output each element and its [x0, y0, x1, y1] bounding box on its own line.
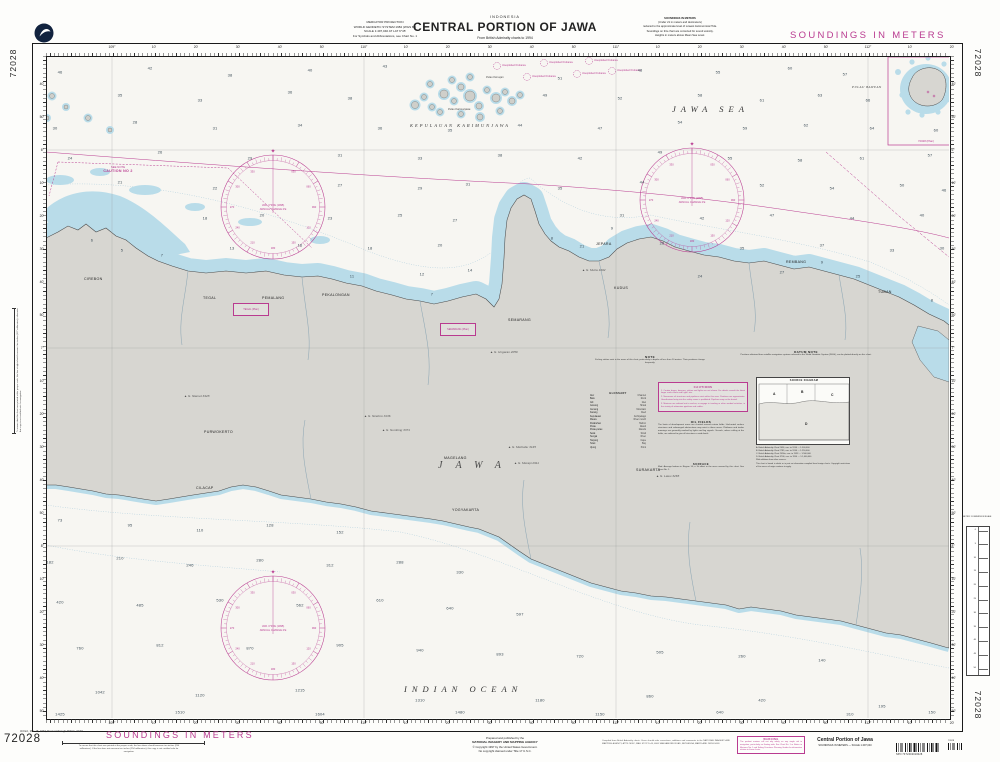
- source-region-letter: C: [831, 393, 833, 397]
- metric-scale-value: 10: [968, 557, 976, 559]
- soundings-note-line: Heights in meters above Mean Sea Level.: [593, 34, 768, 38]
- label-bawean-plan: 72028 (Plan): [918, 139, 934, 143]
- lon-label-bottom: 110°: [361, 721, 368, 725]
- lat-label-left: 30': [33, 445, 44, 449]
- warning-body: The prudent mariner will not rely solely…: [740, 741, 802, 752]
- metric-scale-value: 25: [968, 598, 976, 600]
- caution-item: 1. Certain buoys, beacons, stakes and li…: [661, 390, 745, 396]
- lon-label-bottom: 30': [740, 721, 744, 725]
- lon-label-bottom: 10': [152, 721, 156, 725]
- lat-label-right: 50': [952, 115, 956, 119]
- barcode: [896, 743, 940, 752]
- metric-scale-value: 35: [968, 626, 976, 628]
- tickband-left: [43, 56, 47, 718]
- place-label: PEMALANG: [262, 296, 284, 300]
- metric-scale-value: 20: [968, 584, 976, 586]
- soundings-note-block: SOUNDINGS IN METERS (Under 21 in meters …: [593, 17, 768, 38]
- ordnance-label: Unexploded Ordnance: [582, 72, 606, 75]
- lon-label-bottom: 50': [572, 721, 576, 725]
- place-label: REMBANG: [786, 260, 806, 264]
- lon-label-top: 10': [908, 45, 912, 49]
- place-label: CIREBON: [84, 277, 102, 281]
- lat-label-left: 10': [33, 577, 44, 581]
- metric-scale-tick: [978, 600, 988, 601]
- lon-label-top: 40': [782, 45, 786, 49]
- lat-label-left: 40': [33, 478, 44, 482]
- metric-scale-value: 15: [968, 570, 976, 572]
- metric-scale-title: METRIC CONVERSION SCALE: [962, 516, 992, 519]
- peak-label: ▲ G. Sumbing 3371: [382, 428, 410, 432]
- lat-label-right: 20': [952, 412, 956, 416]
- note-body: Positions obtained from satellite naviga…: [740, 354, 872, 357]
- lat-label-right: 10': [952, 181, 956, 185]
- bottom-title-subtitle: SOUNDINGS IN METERS — SCALE 1:497,040: [818, 744, 871, 747]
- lon-label-top: 111°: [613, 45, 620, 49]
- lon-label-top: 30': [740, 45, 744, 49]
- chart-number-right-bottom: 72028: [973, 685, 983, 725]
- note-body: The limits of development areas are char…: [658, 424, 744, 436]
- lon-label-top: 40': [278, 45, 282, 49]
- peak-label: ▲ G. Sindoro 3136: [364, 414, 390, 418]
- lat-label-right: 50': [952, 313, 956, 317]
- chart-country: INDONESIA: [490, 15, 520, 19]
- lon-label-top: 40': [530, 45, 534, 49]
- lat-label-right: 40': [952, 478, 956, 482]
- place-label: TEGAL: [203, 296, 216, 300]
- ordnance-label: Unexploded Ordnance: [502, 64, 526, 67]
- ordnance-label: Unexploded Ordnance: [594, 59, 618, 62]
- scale-check-line: [62, 743, 205, 744]
- source-region-letter: D: [805, 422, 807, 426]
- lat-label-left: 30': [33, 643, 44, 647]
- scale-check-tick: [12, 308, 16, 309]
- projection-line: For Symbols and Abbreviations, see Chart…: [290, 34, 480, 39]
- lat-label-left: 20': [33, 214, 44, 218]
- metric-scale-tick: [978, 613, 988, 614]
- lon-label-bottom: 20': [698, 721, 702, 725]
- lat-label-right: 50': [952, 511, 956, 515]
- chart-number-bottom-left: 72028: [4, 733, 41, 745]
- lon-label-bottom: 50': [320, 721, 324, 725]
- lon-label-top: 112°: [865, 45, 872, 49]
- peak-label: ▲ G. Merbabu 3145: [508, 445, 536, 449]
- metric-scale-value: 30: [968, 612, 976, 614]
- lat-label-left: 30': [33, 247, 44, 251]
- place-label: PEKALONGAN: [322, 293, 350, 297]
- lat-label-left: 50': [33, 313, 44, 317]
- chart-number-right-top: 72028: [973, 43, 983, 83]
- lat-label-right: 30': [952, 643, 956, 647]
- lat-label-right: 40': [952, 82, 956, 86]
- metric-scale-value: 50: [968, 667, 976, 669]
- chart-title: CENTRAL PORTION OF JAWA: [413, 20, 597, 34]
- lat-label-left: 10': [33, 181, 44, 185]
- lon-label-bottom: 20': [446, 721, 450, 725]
- peak-label: ▲ G. Merapi 2911: [514, 461, 539, 465]
- lon-label-bottom: 20': [950, 721, 954, 725]
- sea-label-jawa-sea: JAWA SEA: [672, 104, 749, 114]
- island-label: Pulau Karimunjawa: [448, 108, 470, 111]
- place-label: MAGELANG: [444, 456, 467, 460]
- lat-label-right: 40': [952, 280, 956, 284]
- lat-label-left: 50': [33, 511, 44, 515]
- metric-scale-value: 5: [968, 543, 976, 545]
- lon-label-top: 50': [320, 45, 324, 49]
- scale-check-text-vertical: To ensure that this chart was printed at…: [17, 308, 23, 432]
- caution-no-2: CAUTION NO 2: [103, 169, 132, 173]
- caution-item: 3. Mariners are advised not to anchor, o…: [661, 403, 745, 409]
- warning-box: WARNING The prudent mariner will not rel…: [737, 736, 805, 754]
- lat-label-right: 10': [952, 577, 956, 581]
- lon-label-bottom: 20': [194, 721, 198, 725]
- lon-label-top: 50': [824, 45, 828, 49]
- cautions-box: CAUTIONS 1. Certain buoys, beacons, stak…: [658, 382, 748, 412]
- peak-label: ▲ G. Muria 1602: [582, 268, 606, 272]
- metric-scale-tick: [978, 572, 988, 573]
- lon-label-top: 20': [446, 45, 450, 49]
- lat-label-left: 20': [33, 412, 44, 416]
- lat-label-left: 20': [33, 610, 44, 614]
- glossary-block: GLOSSARY AlurChannelBatuRockGiliIsletGos…: [590, 392, 646, 450]
- scale-check-tick: [12, 433, 16, 434]
- island-label: Pulau Kemujan: [486, 76, 504, 79]
- metric-scale-tick: [978, 544, 988, 545]
- scale-check-tick: [62, 741, 63, 745]
- lat-label-right: 10': [952, 379, 956, 383]
- tickband-bottom: [46, 719, 949, 723]
- publisher-line: No copyright claimed under Title 17 U.S.…: [430, 749, 580, 753]
- place-label: JEPARA: [596, 242, 612, 246]
- lat-label-left: 40': [33, 82, 44, 86]
- lon-label-bottom: 10': [656, 721, 660, 725]
- lon-label-top: 10': [656, 45, 660, 49]
- place-label: TUBAN: [878, 290, 892, 294]
- lat-label-left: 6°: [33, 148, 44, 152]
- publisher-block: Prepared and published by the NATIONAL I…: [430, 736, 580, 753]
- soundings-banner-bottom: SOUNDINGS IN METERS: [106, 730, 254, 740]
- note-body: Mud. Average bottom in Region 14; a 1h e…: [658, 466, 744, 472]
- lon-label-top: 20': [698, 45, 702, 49]
- glossary-term: Ujung: [590, 447, 596, 450]
- note-body: Fishing stakes exist in the areas of thi…: [595, 359, 705, 365]
- lat-label-left: 50': [33, 115, 44, 119]
- compilation-note: Compiled from British Admiralty charts. …: [602, 740, 730, 746]
- lon-label-top: 10': [152, 45, 156, 49]
- place-label: YOGYAKARTA: [452, 508, 479, 512]
- scale-check-tick: [204, 741, 205, 745]
- lon-label-bottom: 10': [908, 721, 912, 725]
- scale-check-text: To ensure that this chart was printed at…: [76, 745, 182, 754]
- ordnance-label: Unexploded Ordnance: [532, 75, 556, 78]
- lon-label-top: 110°: [361, 45, 368, 49]
- agency-seal: [33, 22, 55, 44]
- lon-label-bottom: 10': [404, 721, 408, 725]
- tickband-right: [950, 56, 954, 718]
- nautical-chart-sheet: 030060090120150180210240270300330✦VAR. 0…: [0, 0, 1000, 762]
- lat-label-right: 30': [952, 247, 956, 251]
- lon-label-bottom: 109°: [108, 721, 115, 725]
- place-label: SEMARANG: [508, 318, 531, 322]
- lat-label-right: 20': [952, 610, 956, 614]
- lat-label-right: 8°: [952, 544, 955, 548]
- lat-label-right: 30': [952, 445, 956, 449]
- lon-label-bottom: 40': [782, 721, 786, 725]
- peak-label: ▲ G. Lawu 3265: [656, 474, 679, 478]
- chart-subtitle: From British Admiralty charts to 1994: [477, 36, 533, 40]
- lon-label-top: 50': [572, 45, 576, 49]
- lat-label-left: 7°: [33, 346, 44, 350]
- source-note: With additions from other sources.: [756, 459, 850, 462]
- lon-label-bottom: 30': [236, 721, 240, 725]
- lat-label-right: 20': [952, 214, 956, 218]
- note-surface: SURFACE Mud. Average bottom in Region 14…: [658, 462, 744, 472]
- source-footnote: This chart is based in whole or in part …: [756, 463, 850, 469]
- chart-number-left-top: 72028: [8, 43, 18, 83]
- lat-label-right: 50': [952, 709, 956, 713]
- metric-scale-tick: [978, 531, 988, 532]
- lon-label-bottom: 30': [488, 721, 492, 725]
- metric-scale-tick: [978, 669, 988, 670]
- lon-label-bottom: 40': [278, 721, 282, 725]
- peak-label: ▲ G. Ungaran 2050: [490, 350, 518, 354]
- lat-label-left: 40': [33, 676, 44, 680]
- lat-label-right: 6°: [952, 148, 955, 152]
- caution-item: 2. Numerous oil structures and pipelines…: [661, 396, 745, 402]
- metric-scale-tick: [978, 627, 988, 628]
- scale-check-line-vertical: [14, 308, 15, 433]
- metric-scale-value: 40: [968, 639, 976, 641]
- metric-scale-value: 0: [968, 529, 976, 531]
- plan-limit-box: TEGAL (Plan): [233, 303, 269, 316]
- lon-label-top: 20': [194, 45, 198, 49]
- sea-label-indian-ocean: INDIAN OCEAN: [404, 684, 522, 694]
- lat-label-right: 40': [952, 676, 956, 680]
- ordnance-label: Unexploded Ordnance: [617, 69, 641, 72]
- glossary-def: Point: [641, 447, 646, 450]
- metric-conversion-scale: 05101520253035404550: [966, 526, 990, 676]
- metric-scale-value: 45: [968, 653, 976, 655]
- place-label: CILACAP: [196, 486, 213, 490]
- lon-label-top: 20': [950, 45, 954, 49]
- barcode2-label: 72028: [948, 740, 954, 742]
- note-datum: DATUM NOTE Positions obtained from satel…: [740, 350, 872, 357]
- cautions-title: CAUTIONS: [661, 385, 745, 389]
- lon-label-bottom: 50': [824, 721, 828, 725]
- lon-label-top: 109°: [108, 45, 115, 49]
- note-fishing: NOTE Fishing stakes exist in the areas o…: [595, 355, 705, 365]
- lat-label-right: 7°: [952, 346, 955, 350]
- lat-label-left: 50': [33, 709, 44, 713]
- source-region-letter: A: [773, 392, 775, 396]
- glossary-row: UjungPoint: [590, 447, 646, 450]
- lon-label-top: 30': [488, 45, 492, 49]
- barcode-small: [948, 743, 962, 750]
- lon-label-top: 10': [404, 45, 408, 49]
- tickband-top: [46, 53, 949, 57]
- bottom-title: Central Portion of Jawa: [817, 737, 873, 743]
- label-karimunjawa: KEPULAUAN KARIMUNJAWA: [410, 123, 510, 128]
- plan-limit-box: SEMARANG (Plan): [440, 323, 476, 336]
- ordnance-label: Unexploded Ordnance: [549, 61, 573, 64]
- metric-scale-tick: [978, 586, 988, 587]
- metric-scale-tick: [978, 558, 988, 559]
- metric-scale-tick: [978, 655, 988, 656]
- soundings-banner-top: SOUNDINGS IN METERS: [790, 30, 946, 41]
- land-label-jawa: JAWA: [438, 460, 514, 471]
- lon-label-top: 30': [236, 45, 240, 49]
- place-label: SURAKARTA: [636, 468, 660, 472]
- source-region-letter: B: [801, 390, 803, 394]
- lon-label-bottom: 40': [530, 721, 534, 725]
- lon-label-bottom: 112°: [865, 721, 872, 725]
- lat-label-left: 10': [33, 379, 44, 383]
- lat-label-left: 8°: [33, 544, 44, 548]
- place-label: KUDUS: [614, 286, 628, 290]
- note-oil-fields: OIL FIELDS The limits of development are…: [658, 420, 744, 436]
- lon-label-bottom: 111°: [613, 721, 620, 725]
- place-label: PURWOKERTO: [204, 430, 233, 434]
- label-pulau-bawean: PULAU BAWEAN: [852, 85, 882, 89]
- source-diagram: SOURCE DIAGRAM ABCD A. British Admiralty…: [756, 377, 850, 469]
- lat-label-left: 40': [33, 280, 44, 284]
- barcode-text: SPN 7F72402010028: [896, 753, 922, 756]
- peak-label: ▲ G. Slamet 3428: [184, 394, 209, 398]
- metric-scale-tick: [978, 641, 988, 642]
